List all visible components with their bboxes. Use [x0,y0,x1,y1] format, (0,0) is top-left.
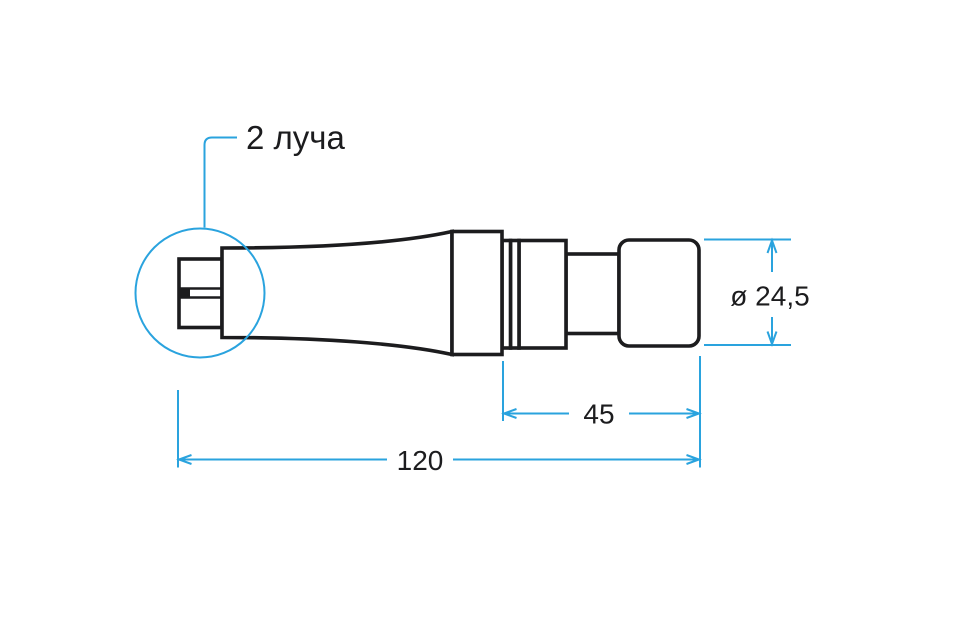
collar [452,232,502,355]
end-cap [619,240,699,346]
dimension-overall-length: 120 [178,390,700,476]
dimension-front-length: 45 [503,356,700,468]
tip-slot-end-fill [179,288,190,299]
diameter-value: ø 24,5 [730,281,809,312]
horn-taper-body [222,232,452,355]
callout-label: 2 луча [246,119,345,156]
overall-length-value: 120 [397,445,444,476]
technical-drawing-canvas: 2 луча ø 24,5 45 120 [0,0,960,640]
front-length-value: 45 [583,399,614,430]
shaft-section [566,254,619,334]
leader-line [205,138,238,228]
part-side-view [179,232,699,355]
dimension-diameter: ø 24,5 [704,240,810,346]
tool-tip-side-view-drawing: 2 луча ø 24,5 45 120 [0,0,960,640]
body-cylinder [519,241,566,349]
